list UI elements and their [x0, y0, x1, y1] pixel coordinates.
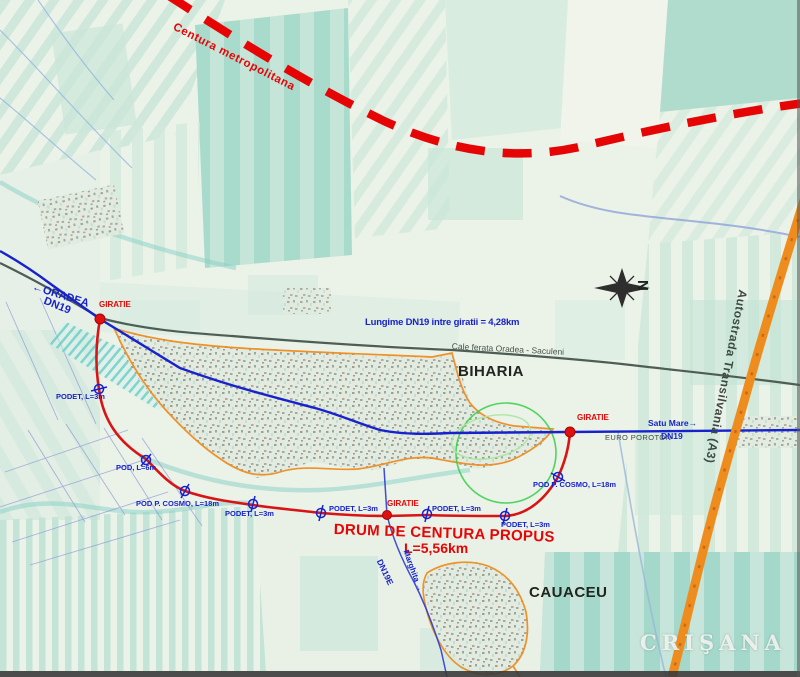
bottom-edge-strip: [0, 671, 800, 677]
roundabout-marker-right: [565, 427, 575, 437]
satu-mare-arrow-icon: →: [689, 418, 698, 428]
label-pod-6m: POD, L=6m: [116, 464, 156, 472]
roundabout-marker-mid: [383, 511, 392, 520]
map-canvas: [0, 0, 800, 677]
label-giratie-left: GIRATIE: [99, 301, 131, 309]
compass-north-label: N: [635, 280, 650, 291]
label-podet-a: PODET, L=3m: [56, 393, 105, 401]
satu-mare-label: Satu Mare: [648, 418, 689, 428]
label-lungime-dn19: Lungime DN19 intre giratii = 4,28km: [365, 318, 519, 328]
watermark-crisana: CRIŞANA: [640, 632, 786, 653]
label-pod-cosmo-left: POD P. COSMO, L=18m: [136, 500, 219, 508]
label-drum-centura-length: L=5,56km: [404, 541, 468, 555]
label-giratie-mid: GIRATIE: [387, 500, 419, 508]
roundabout-marker-left: [95, 314, 105, 324]
hamlet-east: [735, 416, 797, 448]
label-podet-b: PODET, L=3m: [225, 510, 274, 518]
bypass-plan-map: Centura metropolitana ←ORADEA DN19 GIRAT…: [0, 0, 800, 677]
label-giratie-right: GIRATIE: [577, 414, 609, 422]
label-dn19-right: DN19: [661, 432, 683, 441]
label-podet-c: PODET, L=3m: [329, 505, 378, 513]
label-biharia: BIHARIA: [458, 364, 524, 379]
label-satu-mare: Satu Mare→: [648, 419, 697, 428]
label-cauaceu: CAUACEU: [529, 585, 608, 600]
label-podet-d: PODET, L=3m: [432, 505, 481, 513]
hamlet-mid: [283, 288, 331, 314]
label-pod-cosmo-right: POD P. COSMO, L=18m: [533, 481, 616, 489]
